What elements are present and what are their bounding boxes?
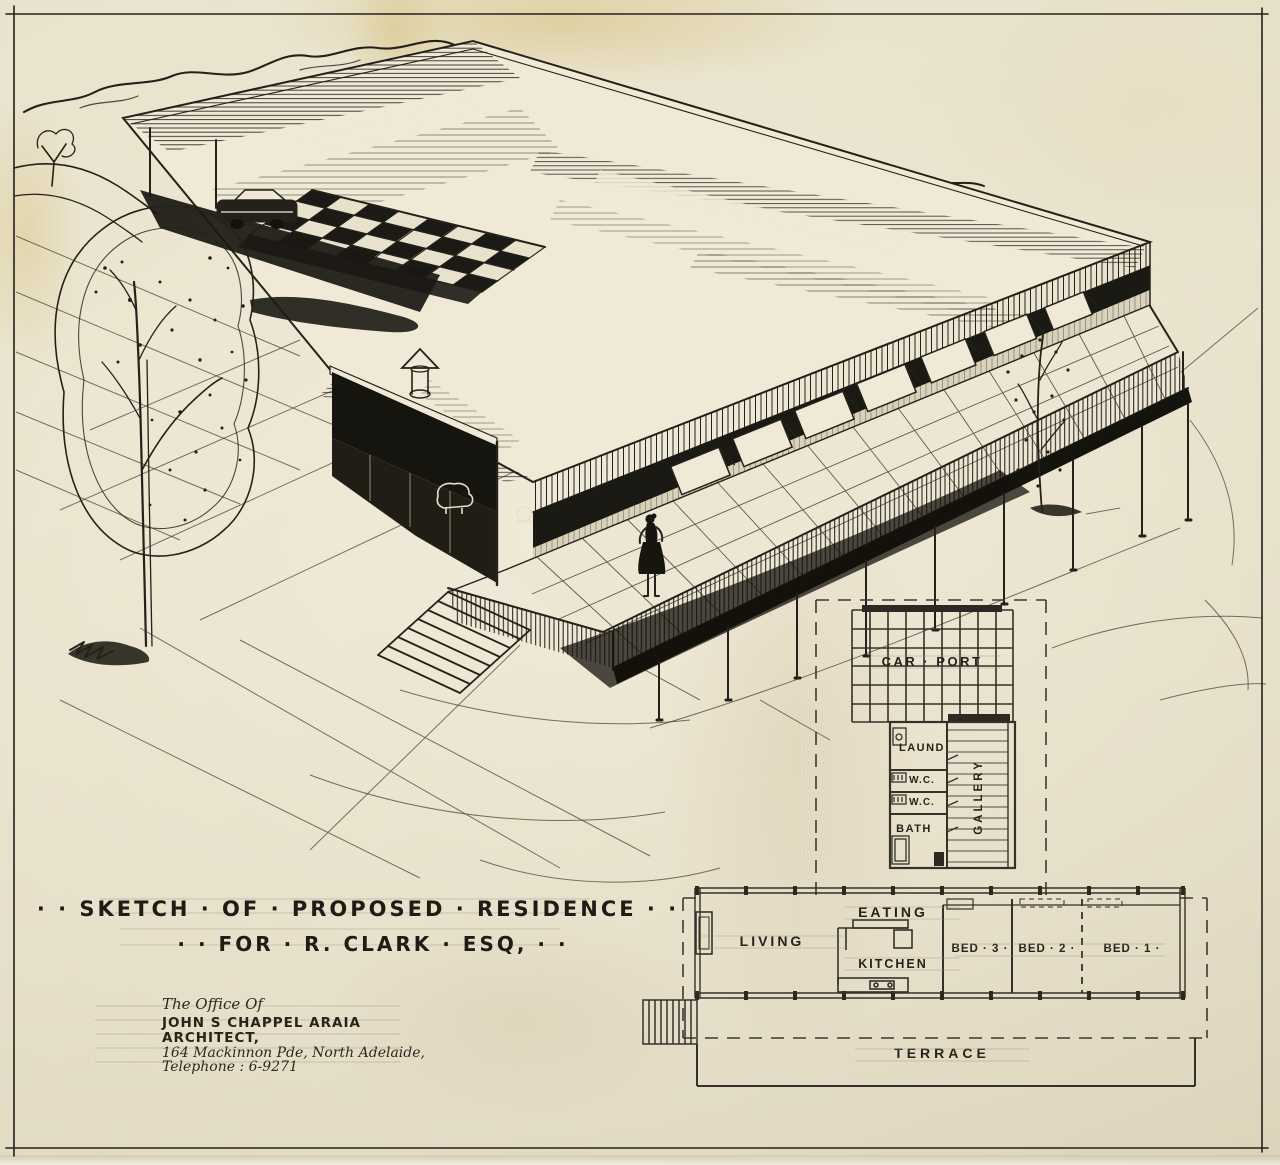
room-label-bed2: BED · 2 · (1019, 943, 1076, 955)
room-label-living: LIVING (740, 933, 805, 949)
room-label-bed1: BED · 1 · (1104, 943, 1161, 955)
plan-carport: CAR · PORT (852, 605, 1013, 722)
plan-terrace: TERRACE (643, 1000, 1195, 1086)
plan-gallery: GALLERY (947, 714, 1010, 868)
room-label-bath: BATH (896, 823, 932, 835)
ink-drawing: CAR · PORT LAUND W.C. W.C. BATH (0, 0, 1280, 1165)
small-tree-3-icon (37, 129, 75, 186)
room-label-gallery: GALLERY (973, 759, 985, 835)
plan-service-block: LAUND W.C. W.C. BATH (890, 722, 1015, 868)
plan-main-wing: LIVING EATING KITCHEN BED · 3 · BED · 2 … (695, 886, 1185, 1000)
room-label-wc-lower: W.C. (909, 797, 935, 808)
room-label-bed3: BED · 3 · (952, 943, 1009, 955)
architect-block: The Office Of JOHN S CHAPPEL ARAIA ARCHI… (95, 995, 425, 1075)
architect-role: ARCHITECT, (162, 1030, 260, 1046)
tree-leaf-dots (95, 256, 248, 521)
room-label-wc-upper: W.C. (909, 775, 935, 786)
room-label-laundry: LAUND (899, 742, 945, 754)
architect-telephone: Telephone : 6-9271 (162, 1059, 298, 1075)
room-label-eating: EATING (858, 904, 928, 920)
room-label-terrace: TERRACE (894, 1045, 990, 1061)
title-line-1: · · SKETCH · OF · PROPOSED · RESIDENCE ·… (37, 897, 679, 921)
room-label-kitchen: KITCHEN (858, 957, 928, 971)
drawing-sheet: CAR · PORT LAUND W.C. W.C. BATH (0, 0, 1280, 1165)
foreground-tree (55, 206, 259, 665)
architect-name: JOHN S CHAPPEL ARAIA (161, 1015, 361, 1031)
plan-guide-lines (700, 656, 1165, 1061)
plan-kitchen-fixtures (838, 920, 912, 992)
title-line-2: · · FOR · R. CLARK · ESQ, · · (177, 932, 568, 956)
architect-office-line: The Office Of (162, 995, 265, 1013)
title-block: · · SKETCH · OF · PROPOSED · RESIDENCE ·… (37, 897, 679, 956)
